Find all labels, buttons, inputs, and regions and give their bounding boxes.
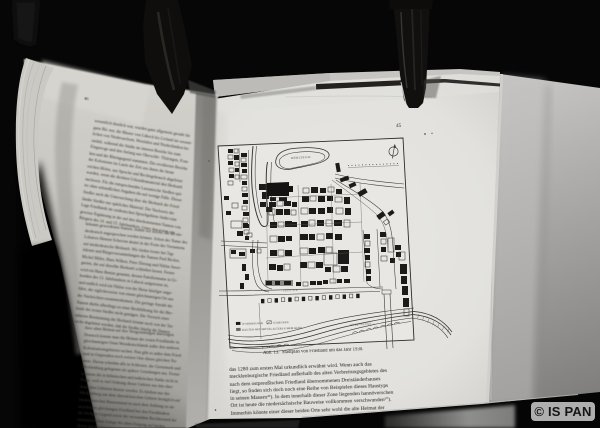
svg-text:SCHEUNEN: SCHEUNEN [273, 321, 289, 325]
svg-text:LANGE STR.: LANGE STR. [283, 289, 299, 293]
